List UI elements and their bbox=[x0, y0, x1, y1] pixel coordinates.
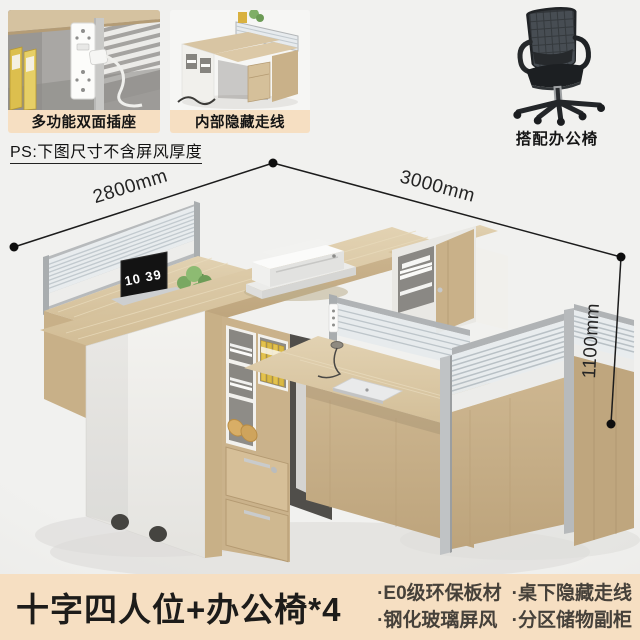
dimension-label-2800: 2800mm bbox=[91, 165, 171, 208]
thumbnail-socket: 多功能双面插座 bbox=[8, 10, 160, 133]
feature-item: ·桌下隐藏走线 bbox=[512, 582, 632, 606]
feature-list: ·E0级环保板材 ·桌下隐藏走线 ·钢化玻璃屏风 ·分区储物副柜 bbox=[377, 582, 632, 633]
white-side-panel bbox=[86, 311, 205, 558]
dimension-label-1100: 1100mm bbox=[579, 302, 604, 379]
dimension-label-3000: 3000mm bbox=[398, 167, 478, 207]
product-title: 十字四人位+办公椅*4 bbox=[16, 583, 341, 631]
chair-label: 搭配办公椅 bbox=[500, 127, 614, 149]
wiring-photo bbox=[170, 10, 310, 110]
product-infographic: 10 39 bbox=[0, 0, 640, 640]
feature-item: ·钢化玻璃屏风 bbox=[377, 609, 502, 633]
chair-figure: 搭配办公椅 bbox=[500, 6, 614, 150]
thumbnail-socket-label: 多功能双面插座 bbox=[8, 110, 160, 133]
thumbnail-wiring: 内部隐藏走线 bbox=[170, 10, 310, 133]
feature-item: ·分区储物副柜 bbox=[512, 609, 632, 633]
office-chair bbox=[500, 6, 614, 126]
size-note: PS:下图尺寸不含屏风厚度 bbox=[10, 138, 202, 164]
bottom-banner: 十字四人位+办公椅*4 ·E0级环保板材 ·桌下隐藏走线 ·钢化玻璃屏风 ·分区… bbox=[0, 574, 640, 640]
thumbnail-wiring-label: 内部隐藏走线 bbox=[170, 110, 310, 133]
socket-strip bbox=[329, 304, 338, 332]
socket-photo bbox=[8, 10, 160, 110]
feature-item: ·E0级环保板材 bbox=[377, 582, 502, 606]
